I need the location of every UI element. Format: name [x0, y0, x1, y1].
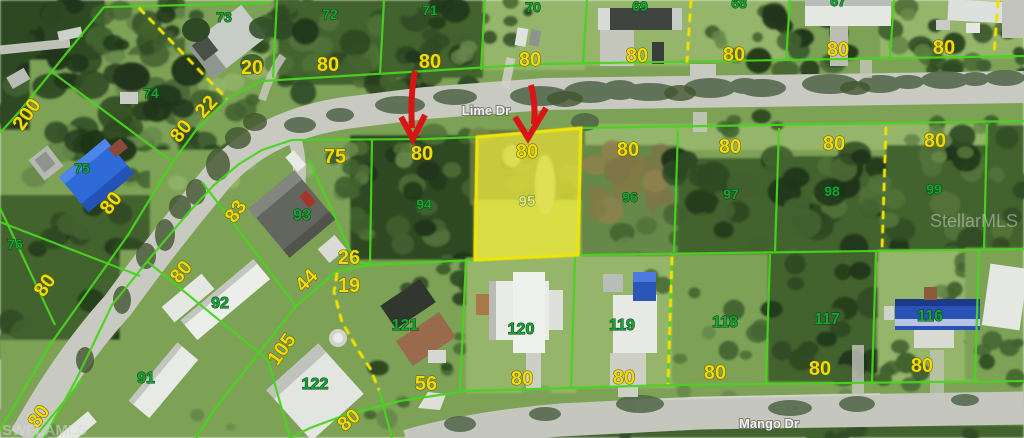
svg-text:93: 93	[293, 207, 311, 224]
svg-text:71: 71	[422, 2, 438, 18]
svg-text:80: 80	[827, 39, 849, 61]
svg-text:97: 97	[723, 186, 739, 202]
svg-text:74: 74	[143, 85, 159, 101]
svg-text:80: 80	[809, 358, 831, 380]
svg-text:26: 26	[338, 247, 360, 269]
svg-text:121: 121	[392, 317, 419, 334]
svg-text:StellarMLS: StellarMLS	[930, 211, 1018, 231]
svg-text:80: 80	[933, 37, 955, 59]
svg-text:80: 80	[719, 136, 741, 158]
svg-text:80: 80	[411, 143, 433, 165]
svg-text:80: 80	[911, 355, 933, 377]
svg-text:80: 80	[519, 49, 541, 71]
svg-text:80: 80	[723, 44, 745, 66]
svg-text:SWFLAMLS: SWFLAMLS	[2, 422, 87, 438]
svg-text:80: 80	[516, 141, 538, 163]
svg-text:118: 118	[712, 314, 738, 331]
svg-text:68: 68	[731, 0, 747, 11]
svg-text:72: 72	[322, 6, 338, 22]
svg-text:80: 80	[419, 51, 441, 73]
svg-text:70: 70	[525, 0, 541, 15]
svg-text:94: 94	[416, 196, 432, 212]
svg-text:119: 119	[609, 317, 635, 334]
svg-text:80: 80	[924, 130, 946, 152]
svg-text:75: 75	[324, 146, 346, 168]
svg-text:95: 95	[519, 193, 536, 210]
svg-text:56: 56	[415, 373, 437, 395]
svg-text:80: 80	[626, 45, 648, 67]
svg-text:80: 80	[511, 368, 533, 390]
svg-text:67: 67	[830, 0, 846, 9]
svg-text:73: 73	[216, 9, 232, 25]
svg-text:91: 91	[137, 370, 155, 387]
svg-text:76: 76	[7, 236, 23, 252]
svg-text:Mango Dr: Mango Dr	[739, 416, 799, 431]
svg-text:80: 80	[704, 362, 726, 384]
svg-text:99: 99	[926, 181, 942, 197]
svg-text:120: 120	[508, 321, 535, 338]
svg-text:75: 75	[74, 160, 90, 176]
svg-text:116: 116	[917, 308, 943, 325]
svg-text:96: 96	[622, 189, 638, 205]
svg-text:80: 80	[823, 133, 845, 155]
svg-text:80: 80	[617, 139, 639, 161]
svg-text:69: 69	[632, 0, 648, 14]
svg-text:19: 19	[338, 275, 360, 297]
svg-text:122: 122	[302, 376, 329, 393]
svg-text:92: 92	[211, 295, 229, 312]
svg-text:98: 98	[824, 183, 840, 199]
svg-text:80: 80	[613, 367, 635, 389]
svg-text:80: 80	[317, 54, 339, 76]
svg-text:20: 20	[241, 57, 263, 79]
svg-text:Lime Dr: Lime Dr	[462, 103, 510, 118]
svg-text:117: 117	[814, 311, 840, 328]
